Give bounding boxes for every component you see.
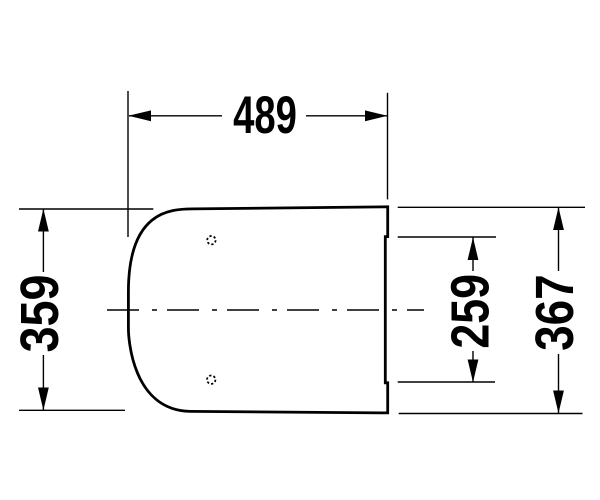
svg-text:259: 259 <box>441 274 501 349</box>
svg-text:489: 489 <box>233 85 297 145</box>
svg-text:367: 367 <box>525 274 585 351</box>
svg-text:359: 359 <box>10 274 70 352</box>
